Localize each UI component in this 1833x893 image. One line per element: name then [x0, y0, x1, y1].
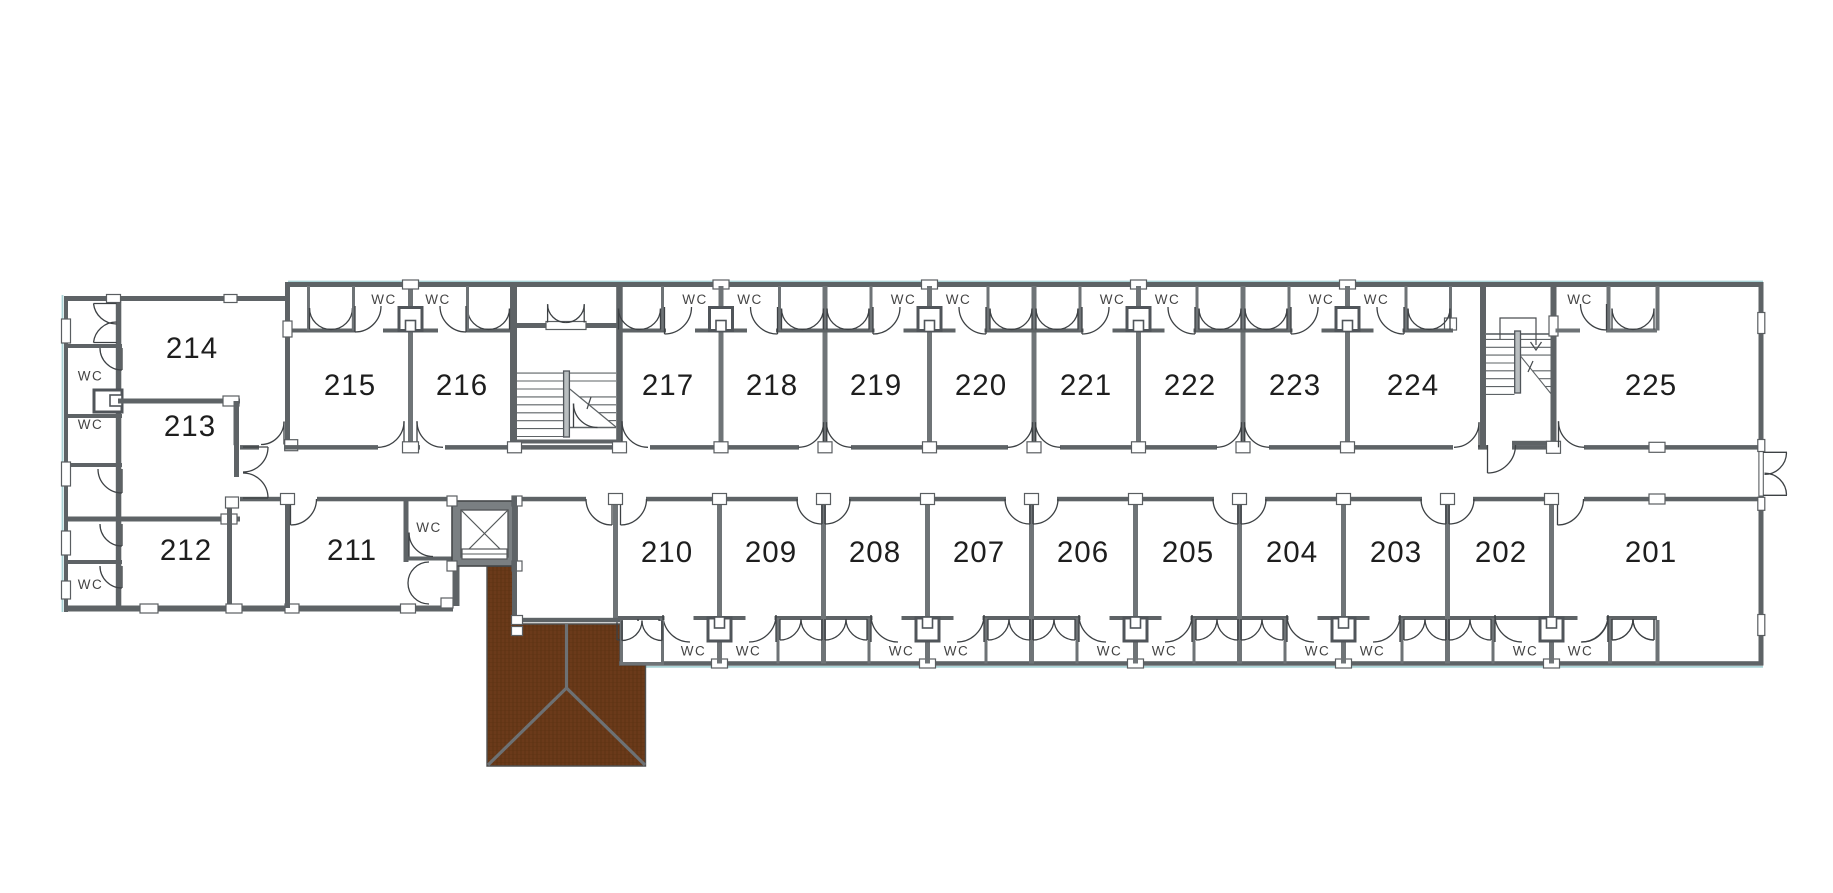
svg-text:212: 212	[160, 534, 212, 567]
svg-text:219: 219	[850, 369, 902, 402]
svg-text:WC: WC	[1155, 292, 1181, 307]
svg-text:WC: WC	[1567, 292, 1593, 307]
svg-text:208: 208	[849, 536, 901, 569]
svg-text:201: 201	[1625, 536, 1677, 569]
svg-text:WC: WC	[737, 292, 763, 307]
svg-text:WC: WC	[891, 292, 917, 307]
svg-text:WC: WC	[681, 644, 707, 659]
svg-text:218: 218	[746, 369, 798, 402]
svg-text:204: 204	[1266, 536, 1318, 569]
svg-text:WC: WC	[78, 417, 104, 432]
svg-text:217: 217	[642, 369, 694, 402]
svg-text:WC: WC	[1360, 644, 1386, 659]
svg-text:WC: WC	[1513, 644, 1539, 659]
svg-text:WC: WC	[944, 644, 970, 659]
svg-text:WC: WC	[1152, 644, 1178, 659]
svg-text:214: 214	[166, 332, 218, 365]
svg-text:206: 206	[1057, 536, 1109, 569]
svg-text:WC: WC	[946, 292, 972, 307]
svg-text:WC: WC	[1100, 292, 1126, 307]
svg-text:221: 221	[1060, 369, 1112, 402]
svg-text:WC: WC	[889, 644, 915, 659]
svg-text:WC: WC	[1364, 292, 1390, 307]
svg-text:WC: WC	[1097, 644, 1123, 659]
svg-text:205: 205	[1162, 536, 1214, 569]
svg-text:216: 216	[436, 369, 488, 402]
svg-text:WC: WC	[1568, 644, 1594, 659]
svg-text:213: 213	[164, 410, 216, 443]
svg-text:202: 202	[1475, 536, 1527, 569]
svg-text:WC: WC	[416, 520, 442, 535]
svg-text:210: 210	[641, 536, 693, 569]
svg-text:203: 203	[1370, 536, 1422, 569]
svg-text:WC: WC	[736, 644, 762, 659]
svg-text:207: 207	[953, 536, 1005, 569]
svg-text:209: 209	[745, 536, 797, 569]
svg-text:222: 222	[1164, 369, 1216, 402]
svg-text:WC: WC	[78, 369, 104, 384]
svg-text:WC: WC	[425, 292, 451, 307]
svg-text:WC: WC	[682, 292, 708, 307]
svg-text:WC: WC	[371, 292, 397, 307]
svg-text:225: 225	[1625, 369, 1677, 402]
svg-text:WC: WC	[1309, 292, 1335, 307]
svg-text:224: 224	[1387, 369, 1439, 402]
svg-text:211: 211	[327, 534, 377, 567]
svg-text:215: 215	[324, 369, 376, 402]
svg-text:223: 223	[1269, 369, 1321, 402]
svg-text:220: 220	[955, 369, 1007, 402]
svg-text:WC: WC	[1305, 644, 1331, 659]
svg-text:WC: WC	[78, 577, 104, 592]
